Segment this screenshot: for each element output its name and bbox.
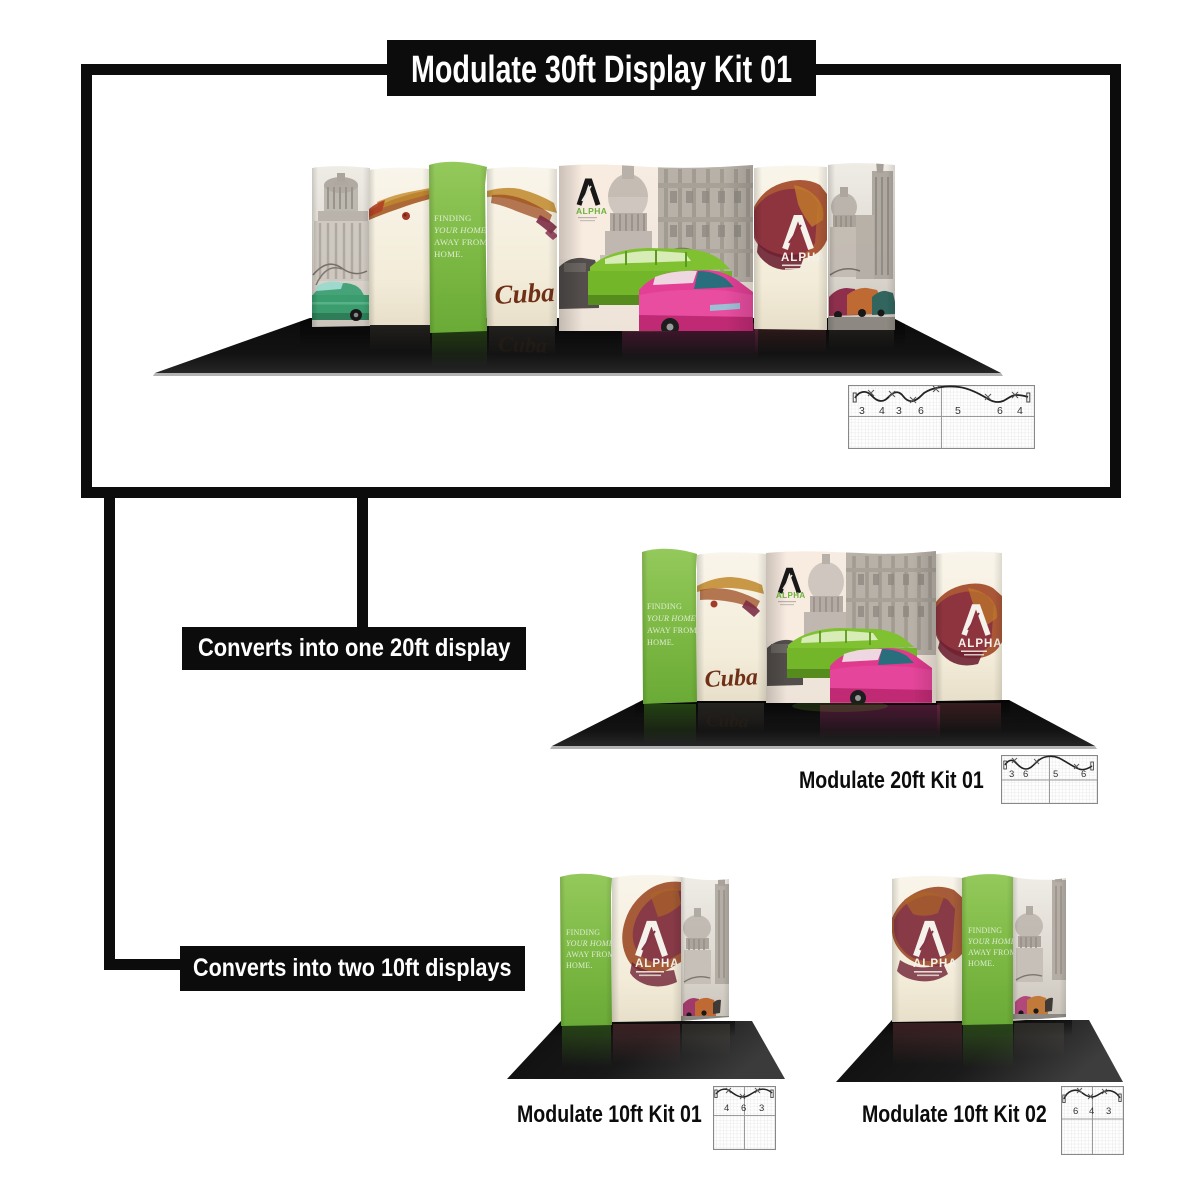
svg-text:6: 6 xyxy=(1081,769,1086,780)
svg-text:3: 3 xyxy=(896,405,902,417)
svg-text:3: 3 xyxy=(759,1103,764,1114)
svg-text:3: 3 xyxy=(1009,769,1014,780)
svg-text:3: 3 xyxy=(859,405,865,417)
svg-text:6: 6 xyxy=(1073,1106,1078,1117)
svg-text:4: 4 xyxy=(1017,405,1023,417)
svg-text:6: 6 xyxy=(741,1103,746,1114)
svg-text:6: 6 xyxy=(918,405,924,417)
svg-text:4: 4 xyxy=(724,1103,729,1114)
svg-text:3: 3 xyxy=(1106,1106,1111,1117)
svg-text:5: 5 xyxy=(955,405,961,417)
svg-text:4: 4 xyxy=(1089,1106,1094,1117)
svg-text:6: 6 xyxy=(1023,769,1028,780)
svg-text:Cuba: Cuba xyxy=(498,331,548,358)
svg-text:4: 4 xyxy=(879,405,885,417)
svg-text:5: 5 xyxy=(1053,769,1058,780)
svg-text:6: 6 xyxy=(997,405,1003,417)
svg-text:Cuba: Cuba xyxy=(706,710,749,732)
